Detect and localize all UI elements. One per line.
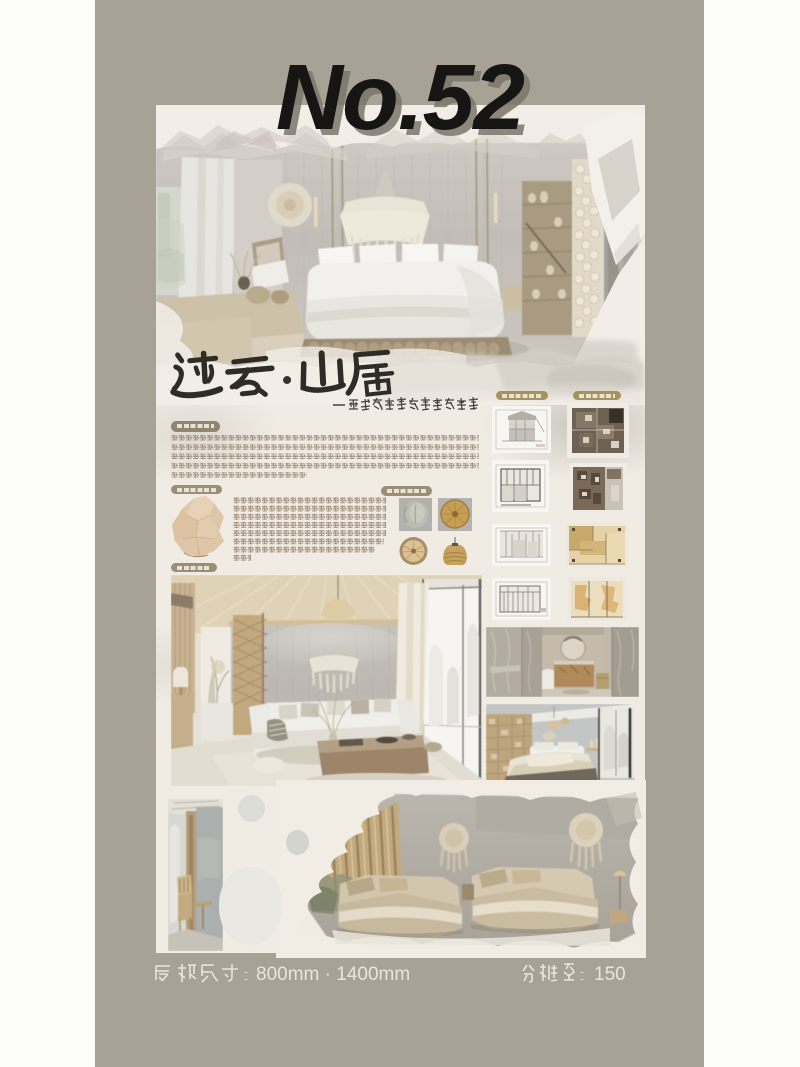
svg-text:150: 150 <box>594 964 626 985</box>
svg-text:800mm · 1400mm: 800mm · 1400mm <box>256 964 410 985</box>
